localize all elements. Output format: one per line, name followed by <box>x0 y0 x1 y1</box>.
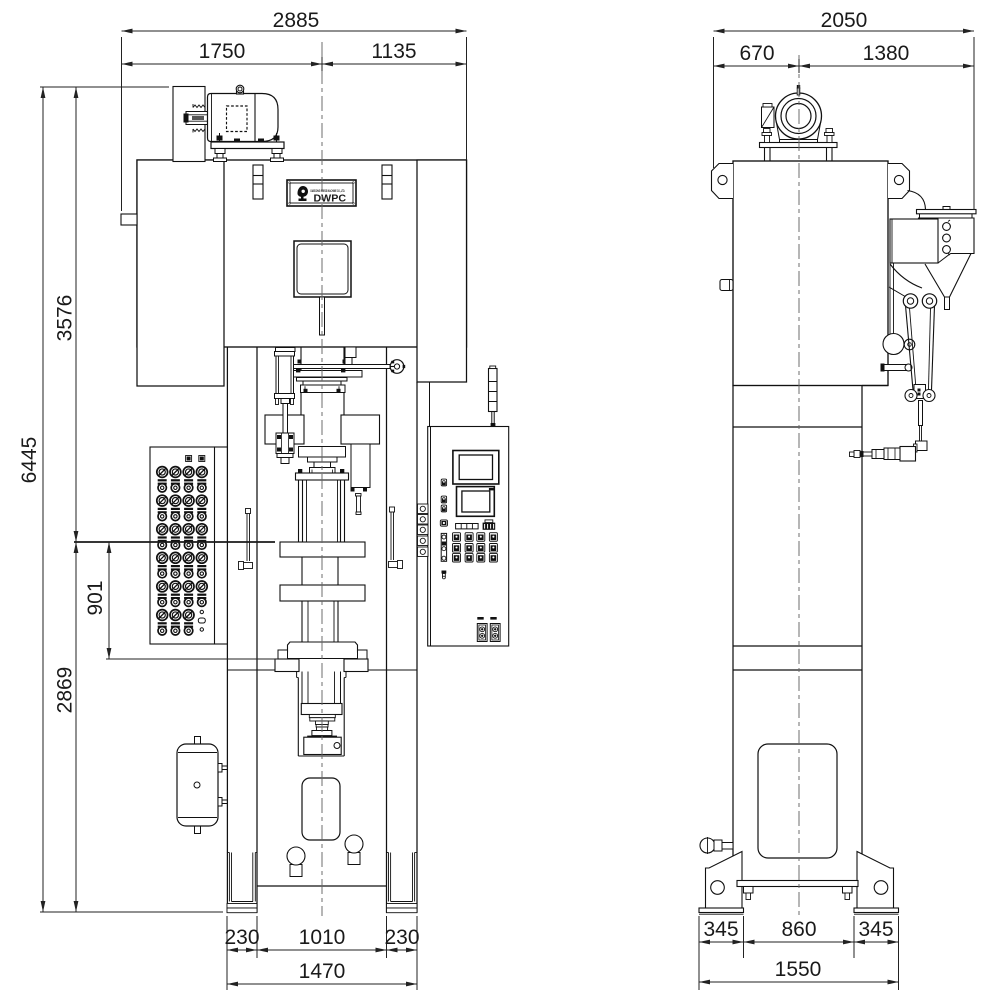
svg-text:2885: 2885 <box>273 9 320 32</box>
svg-text:670: 670 <box>739 42 774 65</box>
svg-text:1380: 1380 <box>863 42 910 65</box>
svg-text:1550: 1550 <box>775 958 822 981</box>
svg-text:DWPC: DWPC <box>314 193 347 204</box>
svg-text:2050: 2050 <box>821 9 868 32</box>
svg-text:2869: 2869 <box>54 667 77 714</box>
svg-text:3576: 3576 <box>54 295 77 342</box>
svg-text:860: 860 <box>781 918 816 941</box>
svg-text:230: 230 <box>224 926 259 949</box>
svg-text:230: 230 <box>384 926 419 949</box>
svg-text:1135: 1135 <box>371 40 416 63</box>
svg-text:6445: 6445 <box>18 437 41 484</box>
svg-text:345: 345 <box>703 918 738 941</box>
svg-text:1750: 1750 <box>199 40 246 63</box>
svg-text:1470: 1470 <box>299 960 346 983</box>
svg-text:345: 345 <box>858 918 893 941</box>
svg-text:901: 901 <box>84 580 107 615</box>
svg-text:1010: 1010 <box>299 926 346 949</box>
